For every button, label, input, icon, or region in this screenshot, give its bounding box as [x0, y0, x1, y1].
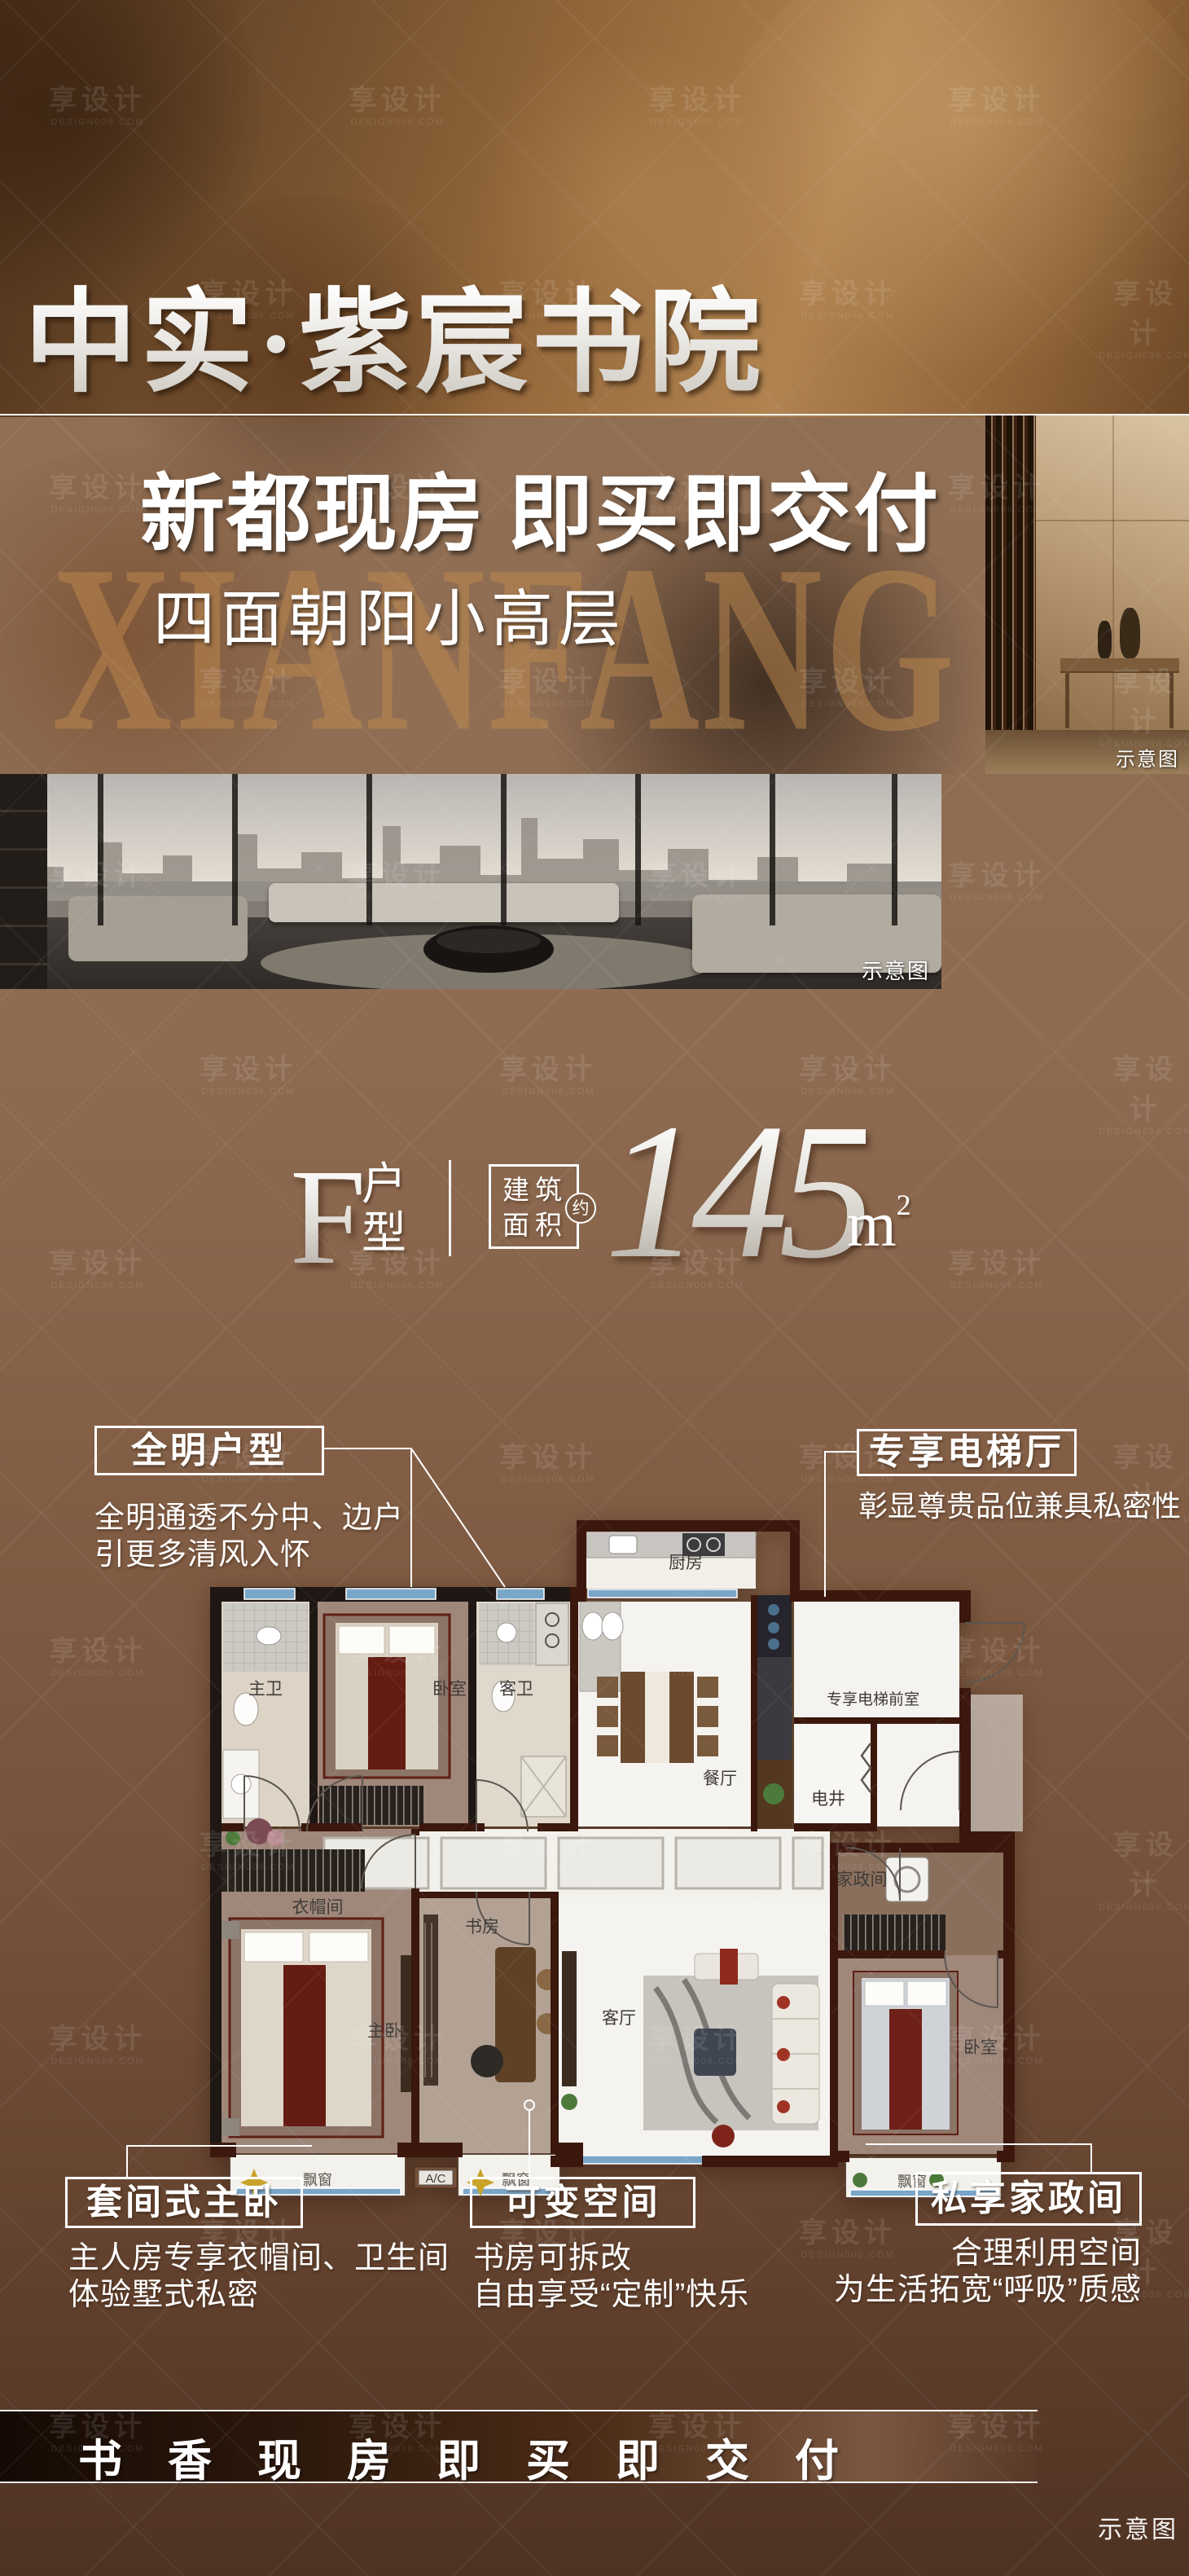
callout-suite-desc: 主人房专享衣帽间、卫生间 体验墅式私密 — [68, 2240, 450, 2314]
callout-line: 为生活拓宽“呼吸”质感 — [816, 2272, 1142, 2309]
callout-line: 书房可拆改 — [473, 2240, 749, 2277]
leader-housework — [866, 2144, 1091, 2172]
callout-line: 主人房专享衣帽间、卫生间 — [68, 2240, 450, 2277]
callout-suite-title: 套间式主卧 — [65, 2177, 303, 2228]
leader-elevator — [825, 1452, 857, 1597]
callout-housework-title: 私享家政间 — [915, 2172, 1142, 2226]
callout-line: 自由享受“定制”快乐 — [473, 2277, 749, 2314]
leader-allbright — [324, 1448, 505, 1587]
leader-suite — [127, 2146, 312, 2177]
callout-line: 合理利用空间 — [816, 2235, 1142, 2272]
leader-flex-marker — [524, 2100, 534, 2110]
callout-flex-title: 可变空间 — [470, 2177, 695, 2228]
callout-line: 体验墅式私密 — [68, 2277, 450, 2314]
callout-housework-desc: 合理利用空间 为生活拓宽“呼吸”质感 — [816, 2235, 1142, 2309]
poster-root: 中实·紫宸书院 XIANFANG 新都现房 即买即交付 四面朝阳小高层 示意图 — [0, 0, 1189, 2576]
divider-line — [0, 414, 1189, 415]
footer-photo-tag: 示意图 — [1098, 2509, 1178, 2545]
footer-slogan: 书香现房即买即交付 — [78, 2424, 884, 2489]
callout-flex-desc: 书房可拆改 自由享受“定制”快乐 — [473, 2240, 749, 2314]
